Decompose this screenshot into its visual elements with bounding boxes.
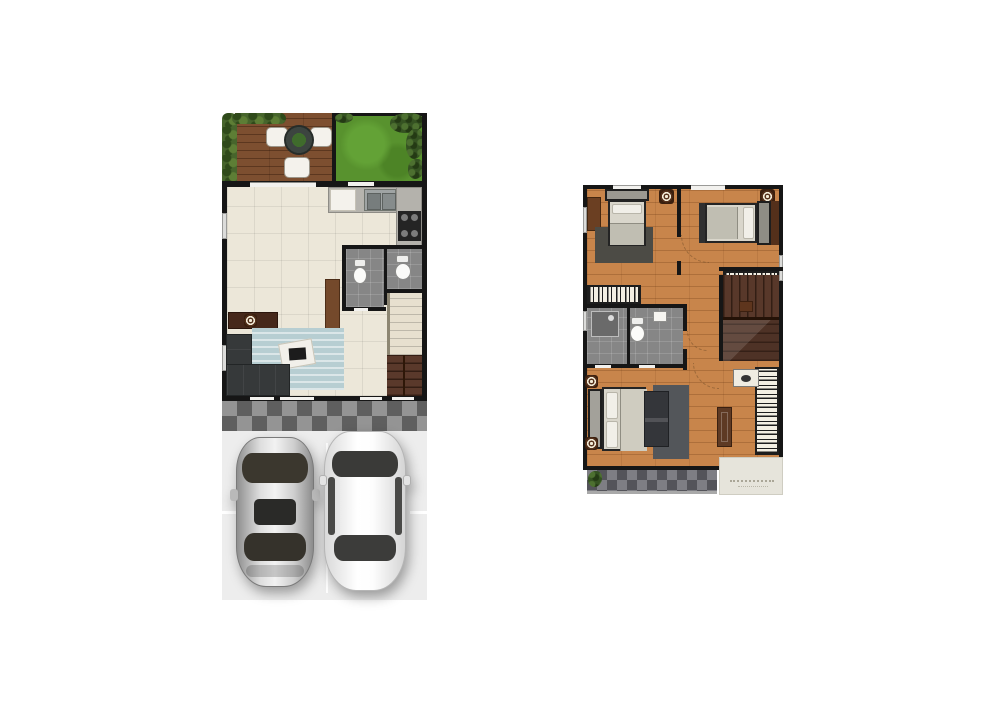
bedroom-window [691, 185, 725, 190]
car-rear-window [334, 535, 396, 561]
sink-basin [382, 193, 396, 210]
double-bed-mattress [705, 203, 757, 243]
front-window [250, 397, 274, 400]
car-mirror [312, 489, 320, 501]
desk [587, 197, 601, 231]
hedge-left [222, 113, 237, 190]
stair-rail [387, 293, 390, 355]
stair-niche-box [739, 301, 753, 312]
blanket [610, 223, 644, 245]
stair-rail [723, 317, 779, 320]
car-windshield [332, 451, 398, 477]
car-side-window [328, 477, 335, 535]
burner [411, 230, 418, 237]
hall-cabinet [733, 369, 759, 387]
wall-decor-ring [659, 189, 674, 204]
floor-plan-image [0, 0, 1000, 707]
shower [591, 311, 619, 337]
outer-wall-right [422, 113, 427, 404]
kitchen-window [348, 182, 374, 186]
bedroom-partition [677, 261, 681, 275]
balcony-floor [587, 470, 717, 492]
bedroom-partition [677, 185, 681, 237]
porch-walkway [222, 401, 427, 431]
car-rear-window [244, 533, 306, 561]
hedge-top [232, 113, 286, 124]
car-side-window [395, 477, 402, 535]
car-mirror [319, 475, 327, 486]
car-mirror [403, 475, 411, 486]
bathroom-door [639, 365, 655, 368]
round-patio-table [284, 125, 314, 155]
silver-car [236, 437, 314, 587]
balcony-railing [587, 491, 717, 494]
side-window [222, 213, 227, 239]
bathroom-wall [683, 304, 687, 331]
pillow [606, 392, 618, 419]
car-windshield [242, 453, 308, 483]
wall-decor-ring [585, 375, 598, 388]
wash-basin [653, 311, 667, 322]
headboard-wood-panel [771, 201, 779, 245]
shower-head [608, 315, 614, 321]
burner [401, 214, 408, 221]
sofa-seat [226, 364, 290, 396]
stove [398, 211, 421, 241]
upper-floor-plan [583, 185, 783, 497]
front-window [360, 397, 382, 400]
outer-wall-right [779, 185, 783, 457]
burner [411, 214, 418, 221]
toilet [352, 259, 368, 285]
wall-decor-ring [585, 437, 598, 450]
bench-stripe [645, 418, 668, 422]
roof-ledge [719, 457, 783, 495]
front-window [392, 397, 414, 400]
toilet [394, 255, 412, 281]
bedroom-bench [644, 391, 669, 447]
blanket [707, 207, 738, 239]
sink-basin [367, 193, 381, 210]
pillow [743, 207, 754, 239]
laptop [289, 347, 307, 360]
pillow [612, 204, 642, 214]
front-door [280, 397, 314, 400]
white-car [324, 431, 406, 591]
car-mirror [230, 489, 238, 501]
bathroom-door [595, 365, 611, 368]
watermark-signature [730, 478, 774, 482]
door-panel [717, 407, 732, 447]
kitchen-island [330, 189, 356, 211]
bathroom-door [354, 308, 368, 311]
stair-rail [403, 355, 405, 396]
cabinet-handle [741, 375, 751, 382]
parking-line [410, 511, 427, 514]
toilet [629, 317, 646, 343]
car-sunroof [254, 499, 296, 525]
patio-chair [284, 157, 310, 178]
master-bed-mattress [602, 387, 646, 451]
bed-headboard [757, 201, 771, 245]
hall-cabinet [325, 279, 340, 329]
garden-wall-left [332, 113, 336, 183]
staircase-upper-flight [723, 275, 779, 319]
wardrobe [587, 285, 641, 304]
burner [401, 230, 408, 237]
staircase-landing [723, 319, 779, 361]
blanket [620, 389, 647, 451]
kitchen-sink [364, 189, 396, 211]
door-panel-inlay [721, 412, 728, 442]
car-trunk [246, 565, 304, 577]
single-bed-mattress [608, 200, 646, 246]
pillow [606, 421, 618, 448]
staircase-upper-flight [387, 293, 422, 355]
ground-floor-plan [222, 113, 427, 600]
wall-decor-ring [244, 314, 257, 327]
watermark-signature [738, 484, 768, 487]
